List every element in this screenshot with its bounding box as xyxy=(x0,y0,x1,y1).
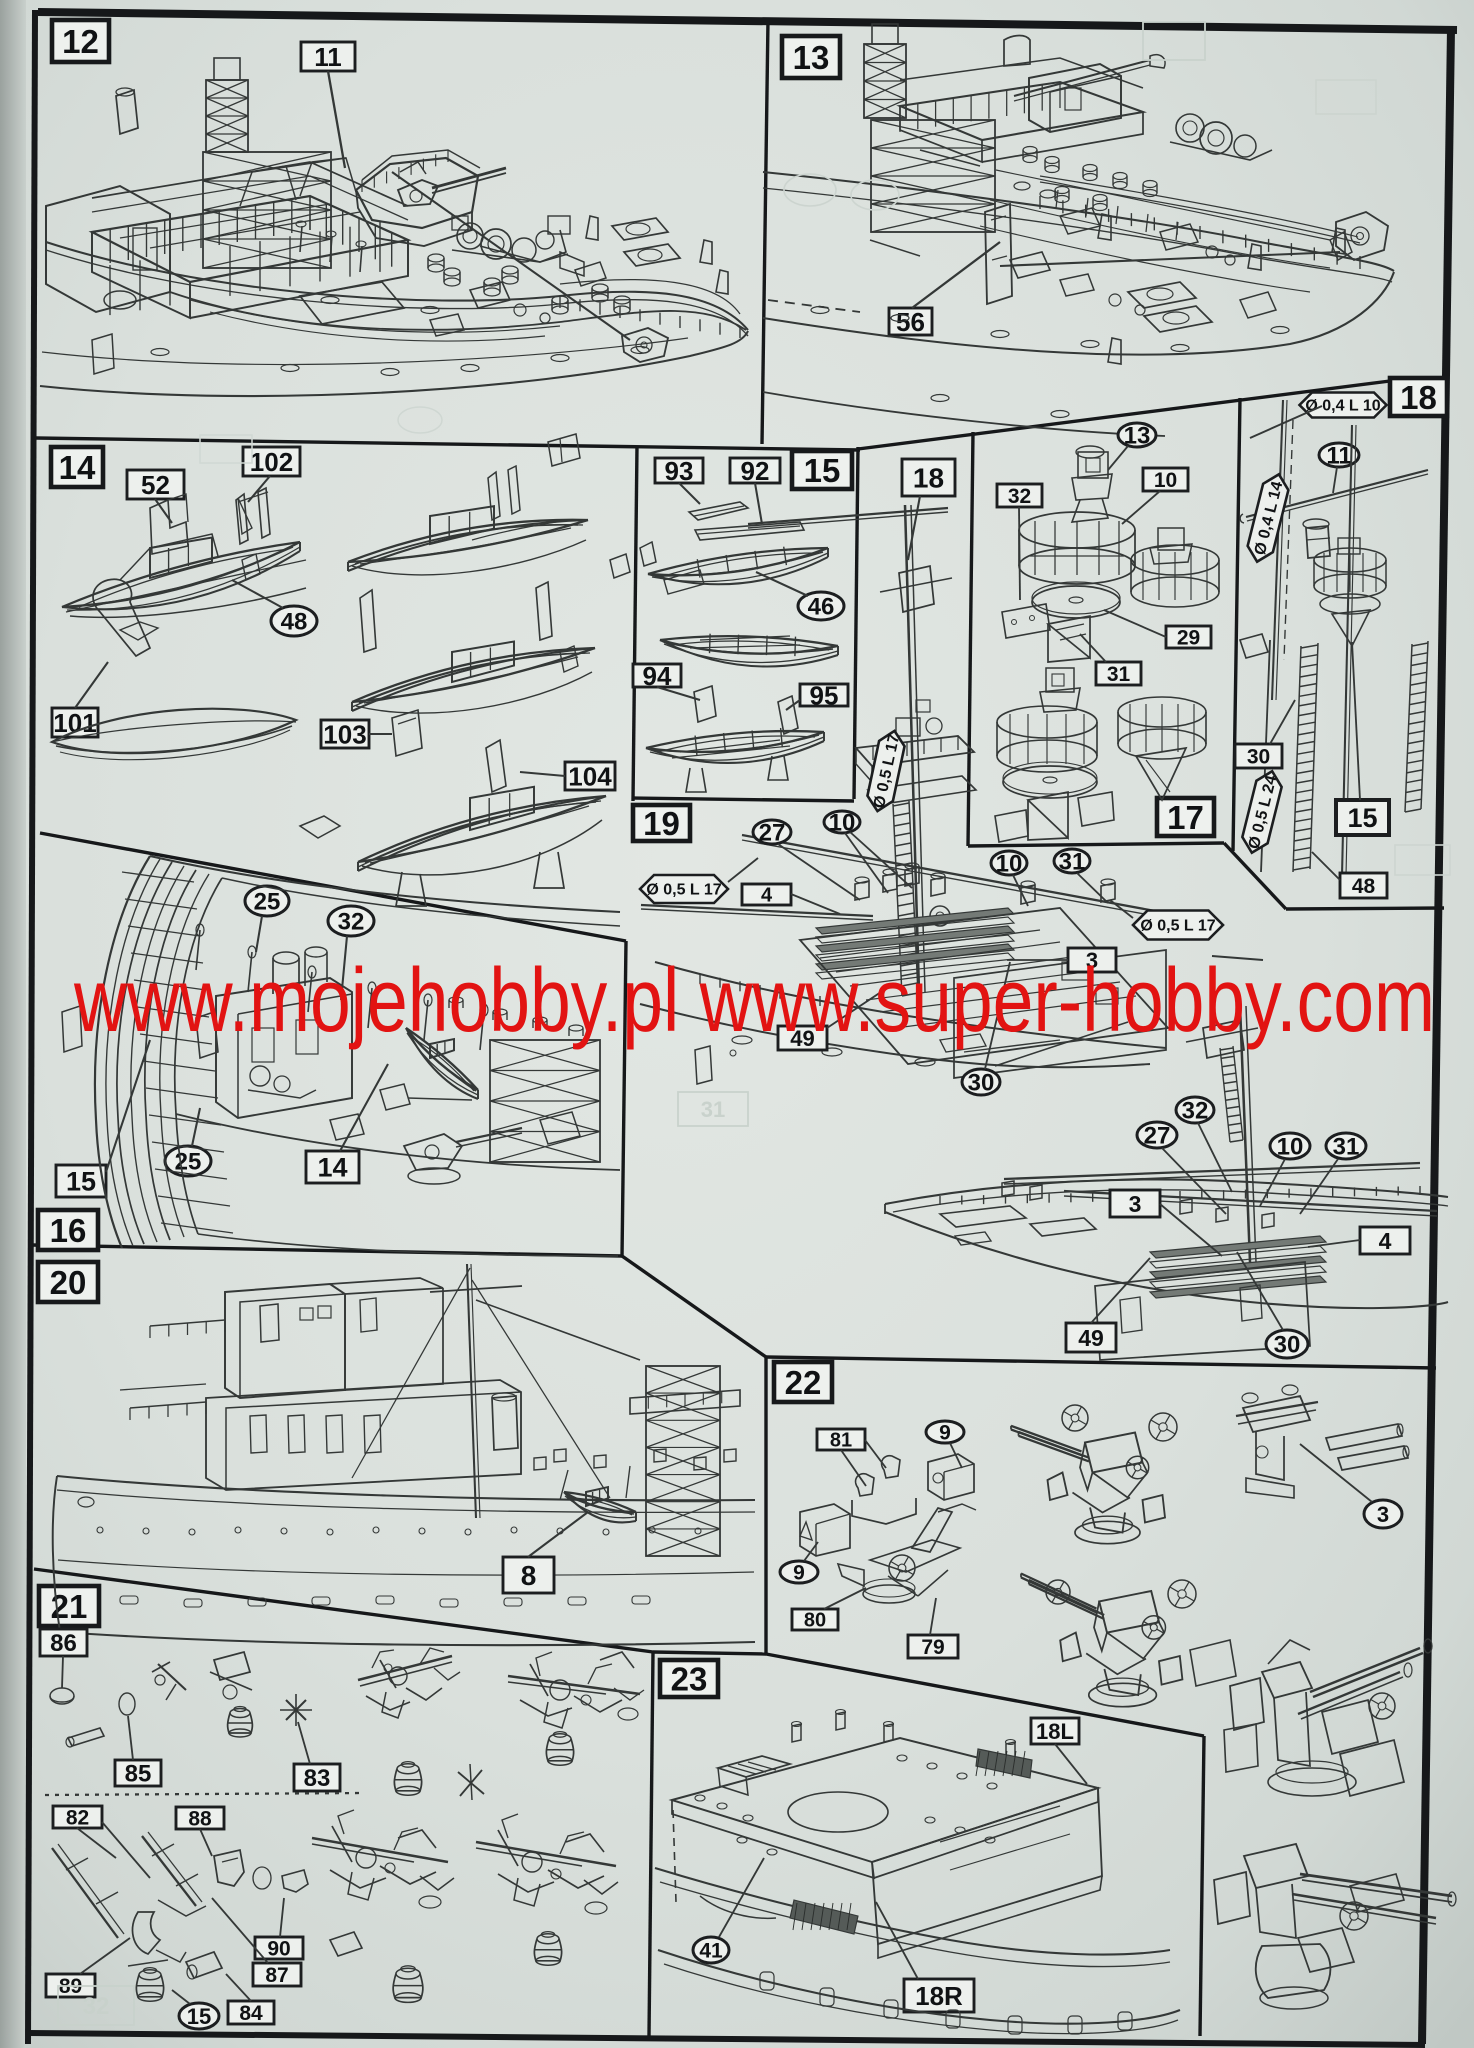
svg-text:25: 25 xyxy=(254,889,281,916)
svg-text:10: 10 xyxy=(1277,1134,1304,1161)
svg-text:4: 4 xyxy=(761,885,773,907)
svg-text:32: 32 xyxy=(338,909,365,936)
svg-text:92: 92 xyxy=(741,456,770,486)
svg-text:49: 49 xyxy=(1078,1325,1104,1351)
svg-text:Ø 0,5 L 17: Ø 0,5 L 17 xyxy=(1140,918,1215,935)
svg-text:48: 48 xyxy=(1352,875,1376,898)
svg-text:90: 90 xyxy=(267,1938,290,1961)
svg-text:88: 88 xyxy=(188,1808,212,1831)
svg-text:13: 13 xyxy=(1124,423,1151,450)
svg-text:3: 3 xyxy=(1377,1502,1389,1527)
svg-text:93: 93 xyxy=(665,456,694,486)
svg-text:31: 31 xyxy=(1333,1134,1360,1161)
svg-text:32: 32 xyxy=(1182,1098,1209,1125)
svg-text:3: 3 xyxy=(1129,1191,1142,1217)
svg-text:22: 22 xyxy=(785,1364,822,1401)
svg-text:86: 86 xyxy=(50,1630,77,1657)
svg-text:12: 12 xyxy=(62,23,99,60)
svg-text:19: 19 xyxy=(643,805,680,842)
svg-text:104: 104 xyxy=(568,761,612,791)
svg-text:95: 95 xyxy=(810,680,839,710)
svg-text:101: 101 xyxy=(53,708,96,738)
svg-text:84: 84 xyxy=(239,2002,263,2025)
svg-text:27: 27 xyxy=(759,820,786,847)
svg-text:87: 87 xyxy=(265,1964,288,1987)
svg-text:31: 31 xyxy=(1107,663,1131,686)
svg-text:Ø 0,5 L 17: Ø 0,5 L 17 xyxy=(646,882,721,899)
svg-text:www.mojehobby.pl www.super-hob: www.mojehobby.pl www.super-hobby.com xyxy=(73,951,1435,1051)
svg-text:15: 15 xyxy=(1347,803,1377,833)
svg-text:41: 41 xyxy=(699,1940,723,1963)
svg-text:8: 8 xyxy=(521,1560,537,1591)
svg-text:27: 27 xyxy=(1144,1123,1171,1150)
svg-text:18L: 18L xyxy=(1036,1719,1074,1744)
svg-text:85: 85 xyxy=(125,1761,152,1788)
svg-text:32: 32 xyxy=(83,1993,110,2020)
svg-text:15: 15 xyxy=(804,452,841,489)
svg-text:79: 79 xyxy=(921,1636,944,1659)
svg-text:32: 32 xyxy=(1008,485,1031,508)
svg-text:15: 15 xyxy=(187,2004,211,2029)
svg-text:18: 18 xyxy=(913,463,944,494)
svg-text:30: 30 xyxy=(968,1070,995,1097)
svg-text:13: 13 xyxy=(793,39,830,76)
svg-text:17: 17 xyxy=(1167,799,1204,836)
svg-text:9: 9 xyxy=(939,1422,951,1445)
svg-text:16: 16 xyxy=(50,1212,87,1249)
svg-text:31: 31 xyxy=(701,1097,725,1122)
svg-text:18: 18 xyxy=(1400,379,1437,416)
svg-text:Ø 0,4 L 10: Ø 0,4 L 10 xyxy=(1305,398,1380,415)
svg-text:80: 80 xyxy=(804,1610,826,1632)
svg-text:29: 29 xyxy=(1177,627,1200,650)
svg-text:14: 14 xyxy=(59,449,96,486)
svg-text:11: 11 xyxy=(1326,443,1351,470)
svg-text:83: 83 xyxy=(304,1765,331,1792)
svg-text:10: 10 xyxy=(996,851,1023,878)
svg-text:52: 52 xyxy=(141,470,170,500)
svg-text:9: 9 xyxy=(793,1562,805,1585)
svg-text:4: 4 xyxy=(1379,1228,1392,1254)
svg-text:11: 11 xyxy=(314,42,342,72)
svg-text:15: 15 xyxy=(66,1167,96,1197)
svg-text:31: 31 xyxy=(1059,849,1086,876)
svg-text:23: 23 xyxy=(671,1660,708,1697)
svg-text:14: 14 xyxy=(317,1153,347,1183)
svg-text:20: 20 xyxy=(50,1264,87,1301)
svg-text:46: 46 xyxy=(808,594,835,621)
svg-text:82: 82 xyxy=(66,1807,89,1830)
svg-text:10: 10 xyxy=(1154,469,1177,492)
svg-text:103: 103 xyxy=(323,719,366,749)
svg-text:102: 102 xyxy=(250,447,293,477)
svg-text:81: 81 xyxy=(830,1430,852,1452)
svg-text:18R: 18R xyxy=(915,1981,963,2011)
svg-text:30: 30 xyxy=(1247,746,1270,769)
svg-text:48: 48 xyxy=(281,609,308,636)
svg-text:30: 30 xyxy=(1274,1332,1301,1359)
